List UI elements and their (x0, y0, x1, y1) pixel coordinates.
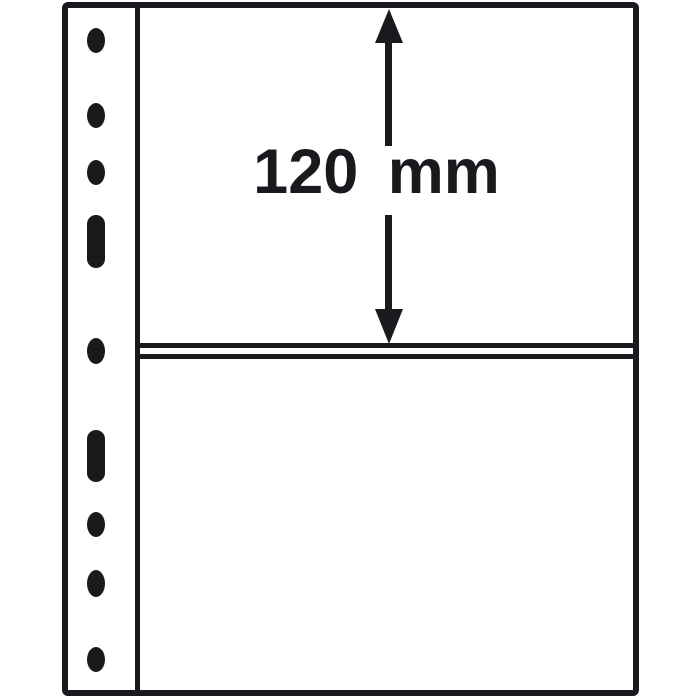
punch-hole (87, 512, 105, 537)
punch-hole-elongated (87, 215, 105, 268)
punch-hole (87, 570, 105, 597)
dimension-arrowhead-down-icon (375, 309, 403, 344)
dimension-arrowhead-up-icon (375, 9, 403, 43)
punch-hole-elongated (87, 430, 105, 482)
punch-hole (87, 103, 105, 128)
punch-hole (87, 160, 105, 185)
dimension-arrow-shaft-upper (385, 41, 392, 146)
punch-hole (87, 647, 105, 672)
binding-strip-line (135, 8, 140, 692)
dimension-arrow-shaft-lower (385, 215, 392, 309)
sheet-outline (62, 2, 639, 696)
punch-hole (87, 338, 105, 364)
punch-hole (87, 28, 105, 53)
dimension-label: 120 mm (236, 139, 517, 205)
diagram-canvas: 120 mm (0, 0, 700, 700)
pocket-divider-seam-bottom (140, 354, 634, 359)
